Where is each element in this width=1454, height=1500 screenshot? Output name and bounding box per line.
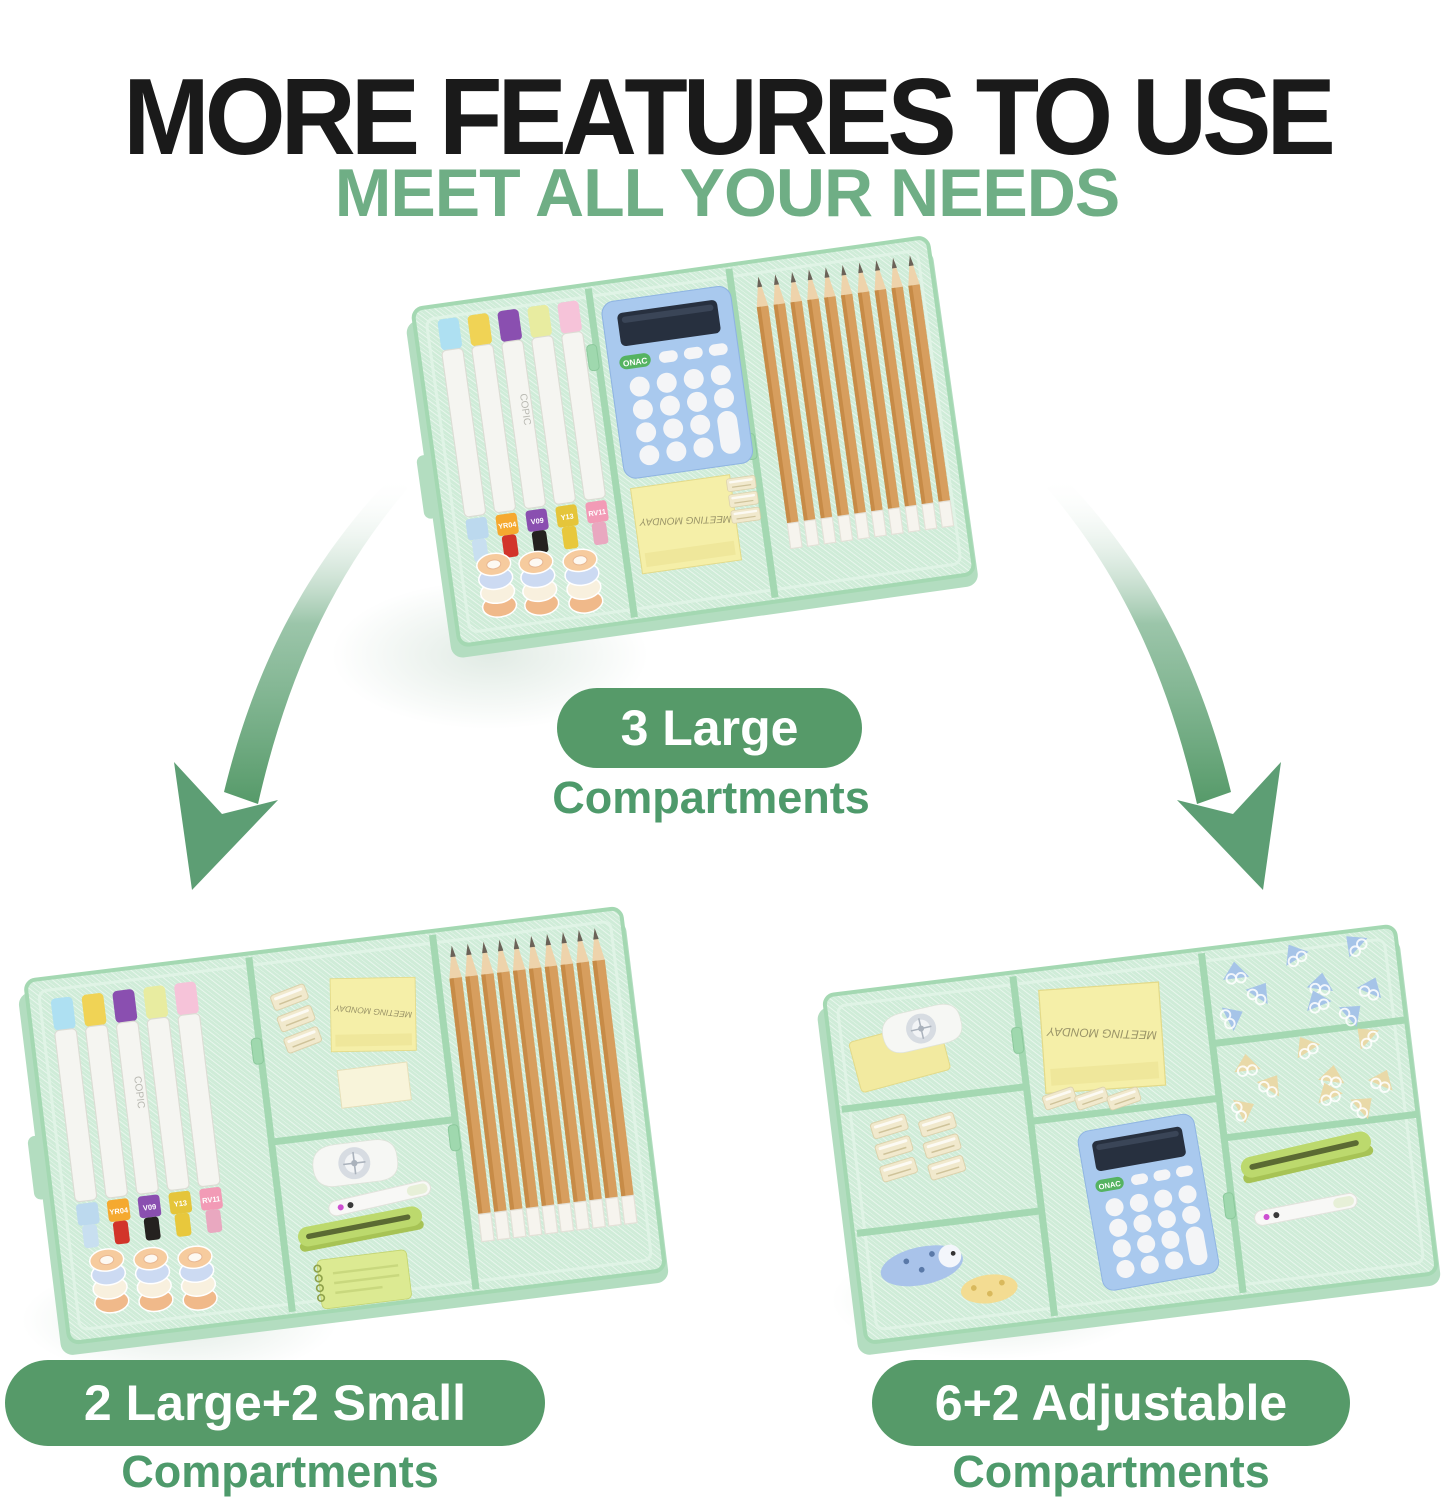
badge-label: 6+2 Adjustable <box>935 1374 1287 1432</box>
badge-label: 2 Large+2 Small <box>84 1374 466 1432</box>
badge-6-2-adjustable: 6+2 Adjustable <box>872 1360 1350 1446</box>
product-infographic: COPIC YR04 V09 Y13 RV11 <box>0 0 1454 1500</box>
caption-2-large-2-small: Compartments <box>30 1446 530 1498</box>
tray-photo-3-large-compartments <box>350 192 1030 717</box>
right-curved-arrow-icon <box>1025 470 1325 915</box>
caption-6-2-adjustable: Compartments <box>886 1446 1336 1498</box>
badge-label: 3 Large <box>621 699 799 757</box>
notepad-stack <box>337 1062 411 1108</box>
badge-3-large: 3 Large <box>557 688 862 768</box>
left-curved-arrow-icon <box>130 470 430 915</box>
tray-photo-6-2-adjustable <box>795 905 1454 1370</box>
badge-2-large-2-small: 2 Large+2 Small <box>5 1360 545 1446</box>
caption-3-large: Compartments <box>486 772 936 824</box>
tray-photo-2-large-2-small <box>0 878 690 1378</box>
